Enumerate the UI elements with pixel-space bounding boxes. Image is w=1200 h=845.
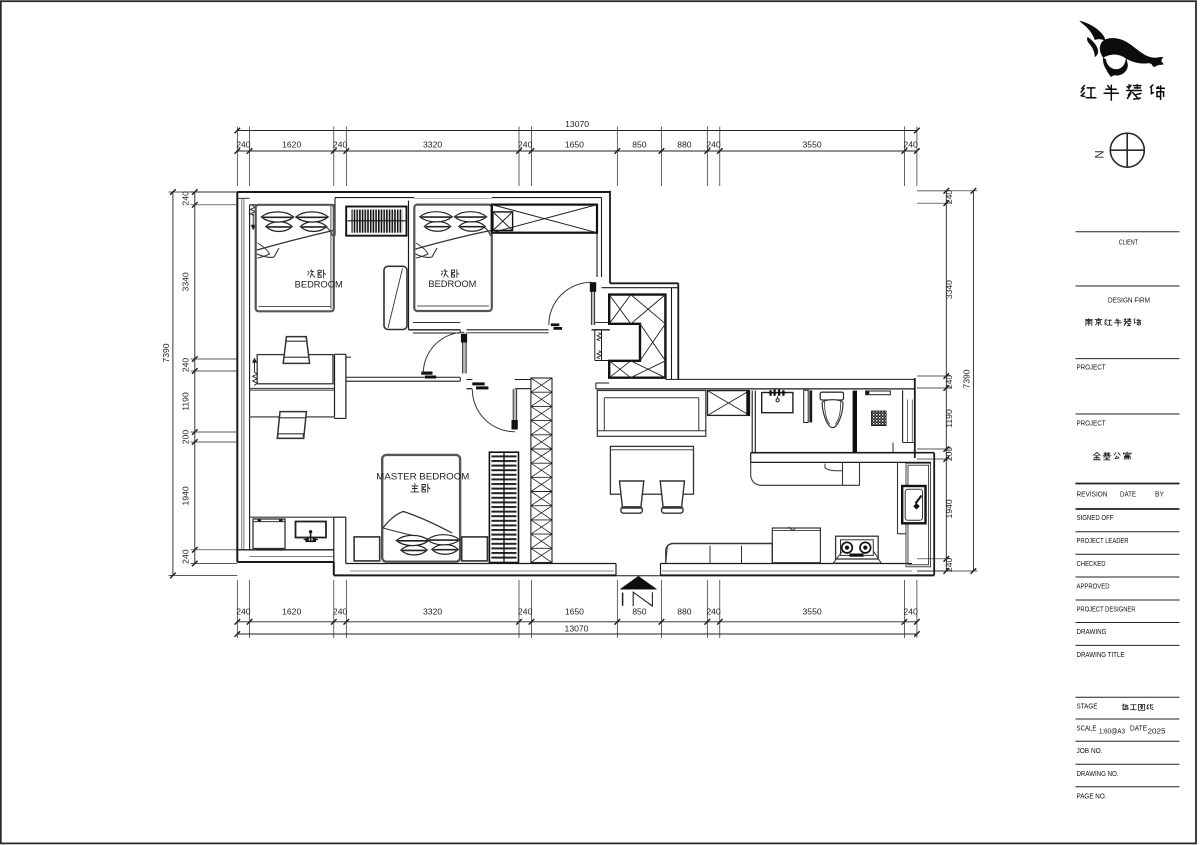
svg-text:240: 240 — [944, 558, 954, 573]
svg-text:JOB NO.: JOB NO. — [1077, 746, 1103, 755]
svg-text:DRAWING: DRAWING — [1077, 627, 1107, 636]
svg-text:240: 240 — [944, 190, 954, 205]
svg-text:1:60@A3: 1:60@A3 — [1099, 727, 1125, 736]
svg-text:CHECKED: CHECKED — [1077, 559, 1106, 568]
svg-text:BEDROOM: BEDROOM — [295, 279, 343, 289]
svg-text:2025: 2025 — [1148, 727, 1166, 736]
svg-text:13070: 13070 — [565, 624, 589, 634]
svg-text:880: 880 — [677, 607, 692, 617]
svg-text:3550: 3550 — [803, 607, 822, 617]
svg-text:MASTER BEDROOM: MASTER BEDROOM — [376, 471, 469, 482]
svg-text:3550: 3550 — [803, 140, 822, 150]
svg-text:DATE: DATE — [1120, 490, 1136, 499]
svg-text:1650: 1650 — [565, 607, 584, 617]
svg-text:240: 240 — [903, 140, 918, 150]
svg-text:240: 240 — [944, 375, 954, 390]
svg-text:240: 240 — [236, 607, 251, 617]
svg-text:240: 240 — [181, 358, 191, 373]
svg-text:DESIGN FIRM: DESIGN FIRM — [1108, 296, 1150, 305]
svg-text:BY: BY — [1155, 490, 1164, 499]
svg-text:3320: 3320 — [423, 140, 442, 150]
svg-text:850: 850 — [632, 140, 647, 150]
svg-text:240: 240 — [236, 140, 251, 150]
svg-text:3340: 3340 — [944, 280, 954, 299]
svg-text:850: 850 — [632, 607, 647, 617]
svg-text:BEDROOM: BEDROOM — [428, 279, 476, 289]
svg-text:1620: 1620 — [282, 607, 301, 617]
svg-text:SIGNED OFF: SIGNED OFF — [1077, 513, 1114, 522]
svg-text:3320: 3320 — [423, 607, 442, 617]
svg-text:7390: 7390 — [962, 369, 972, 388]
svg-text:240: 240 — [180, 549, 190, 564]
svg-text:DATE: DATE — [1130, 724, 1147, 733]
svg-text:240: 240 — [518, 607, 533, 617]
svg-text:APPROVED: APPROVED — [1077, 582, 1110, 591]
svg-text:1190: 1190 — [944, 409, 954, 428]
svg-text:CLIENT: CLIENT — [1119, 238, 1139, 247]
svg-text:REVISION: REVISION — [1077, 490, 1108, 499]
svg-text:PROJECT: PROJECT — [1077, 363, 1106, 372]
svg-text:240: 240 — [333, 140, 348, 150]
svg-text:240: 240 — [706, 607, 721, 617]
svg-text:200: 200 — [181, 430, 191, 445]
svg-text:13070: 13070 — [565, 119, 589, 129]
svg-text:PROJECT: PROJECT — [1077, 419, 1106, 428]
svg-text:880: 880 — [677, 140, 692, 150]
svg-text:STAGE: STAGE — [1077, 702, 1098, 711]
svg-text:PAGE NO.: PAGE NO. — [1077, 792, 1107, 801]
svg-text:240: 240 — [903, 607, 918, 617]
svg-text:240: 240 — [333, 607, 348, 617]
svg-text:3340: 3340 — [181, 272, 191, 291]
svg-text:240: 240 — [181, 191, 191, 206]
svg-text:1650: 1650 — [565, 140, 584, 150]
svg-text:1940: 1940 — [181, 486, 191, 505]
svg-text:N: N — [1094, 150, 1106, 158]
svg-text:PROJECT LEADER: PROJECT LEADER — [1077, 536, 1129, 545]
svg-text:SCALE: SCALE — [1077, 724, 1097, 733]
svg-text:1940: 1940 — [944, 499, 954, 518]
svg-text:1620: 1620 — [282, 140, 301, 150]
svg-text:PROJECT DESIGNER: PROJECT DESIGNER — [1077, 605, 1136, 614]
svg-text:DRAWING NO.: DRAWING NO. — [1077, 769, 1119, 778]
svg-text:240: 240 — [518, 140, 533, 150]
svg-text:7390: 7390 — [161, 343, 171, 362]
svg-text:1190: 1190 — [181, 392, 191, 411]
svg-text:240: 240 — [706, 140, 721, 150]
svg-text:DRAWING TITLE: DRAWING TITLE — [1077, 650, 1125, 659]
